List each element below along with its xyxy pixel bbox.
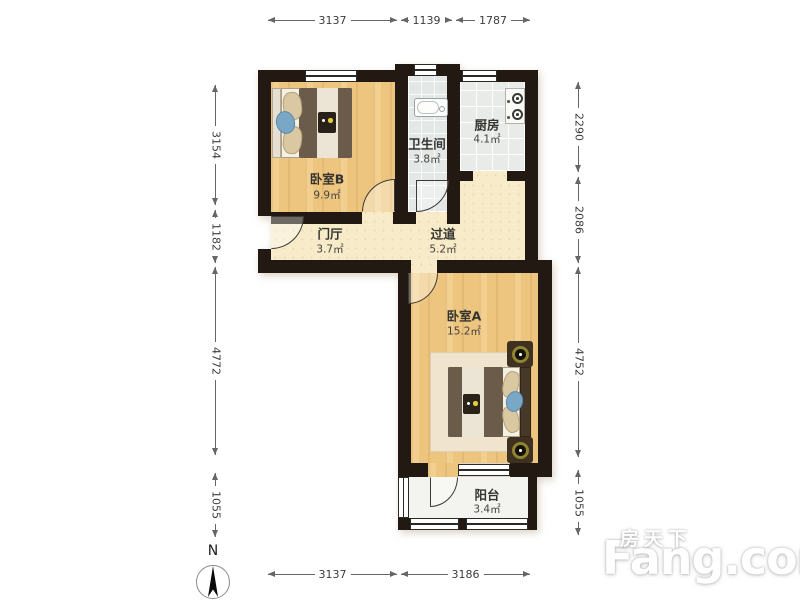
bedroom-b-area: 9.9㎡ bbox=[313, 188, 340, 203]
bedroom-a-area: 15.2㎡ bbox=[447, 324, 481, 339]
dim-right-2-value: 2086 bbox=[573, 201, 586, 239]
corridor-area: 5.2㎡ bbox=[429, 242, 456, 257]
dim-left-4: 1055 bbox=[215, 473, 216, 537]
corridor-label: 过道 bbox=[430, 224, 455, 243]
floor-plan: 卧室B 9.9㎡ 卫生间 3.8㎡ 厨房 4.1㎡ 门厅 3.7㎡ 过道 5.2… bbox=[0, 0, 800, 600]
dim-right-3: 4752 bbox=[578, 267, 579, 457]
balcony-floor bbox=[407, 477, 528, 518]
bedroom-a-label: 卧室A bbox=[447, 306, 482, 325]
dim-left-3: 4772 bbox=[215, 267, 216, 455]
tray-dot-yellow bbox=[328, 118, 333, 123]
wall-right-upper bbox=[525, 70, 538, 263]
dim-top-1-value: 3137 bbox=[315, 14, 351, 27]
bathtub-basin bbox=[417, 101, 439, 114]
tray-a-dot-white bbox=[467, 402, 470, 405]
compass-north-label: N bbox=[208, 543, 218, 559]
stove-knob-1 bbox=[507, 100, 510, 103]
wall-bathroom-kitchen bbox=[447, 64, 460, 224]
dim-top-3: 1787 bbox=[456, 20, 530, 21]
wall-mid-2 bbox=[437, 260, 552, 273]
balcony-window-bottom-2 bbox=[466, 518, 528, 530]
dim-bottom-1: 3137 bbox=[268, 574, 397, 575]
stove-burner-1 bbox=[512, 93, 523, 104]
wall-top-2 bbox=[357, 70, 395, 82]
wall-bedroomb-south-2 bbox=[393, 212, 416, 224]
bedroom-b-bed-tray bbox=[318, 112, 336, 133]
balcony-window-left bbox=[398, 477, 409, 518]
hall-label: 门厅 bbox=[317, 224, 342, 243]
bathtub-icon bbox=[414, 98, 448, 117]
dim-right-1: 2290 bbox=[578, 82, 579, 172]
bedroom-a-balcony-window bbox=[458, 464, 510, 476]
stove-knob-2 bbox=[507, 116, 510, 119]
dim-left-2: 1182 bbox=[215, 210, 216, 263]
wall-mid-1 bbox=[258, 260, 408, 273]
dim-left-3-value: 4772 bbox=[210, 342, 223, 380]
lamp-bottom-icon bbox=[512, 442, 529, 459]
stove-burner-2 bbox=[512, 109, 523, 120]
dim-right-1-value: 2290 bbox=[573, 108, 586, 146]
kitchen-area: 4.1㎡ bbox=[473, 132, 500, 147]
dim-right-3-value: 4752 bbox=[573, 343, 586, 381]
dim-top-2: 1139 bbox=[401, 20, 452, 21]
wall-left-upper bbox=[258, 70, 271, 216]
kitchen-window bbox=[462, 70, 497, 82]
kitchen-doorway-floor bbox=[473, 171, 507, 181]
dim-right-2: 2086 bbox=[578, 177, 579, 263]
bathroom-label: 卫生间 bbox=[408, 134, 446, 153]
bedroom-b-window bbox=[305, 70, 357, 82]
wall-bedroomb-bathroom bbox=[395, 64, 408, 224]
watermark-brand-cn: 房天下 bbox=[620, 524, 692, 551]
bathroom-window bbox=[414, 64, 437, 76]
bedroom-a-doorway-floor bbox=[408, 260, 437, 273]
bathroom-area: 3.8㎡ bbox=[413, 152, 440, 167]
balcony-window-bottom-1 bbox=[410, 518, 459, 530]
wall-bedrooma-right bbox=[538, 260, 552, 477]
wall-balcony-right bbox=[528, 477, 537, 530]
bathtub-tap bbox=[439, 106, 445, 112]
dim-top-3-value: 1787 bbox=[475, 14, 511, 27]
floor-plan-screenshot: 卧室B 9.9㎡ 卫生间 3.8㎡ 厨房 4.1㎡ 门厅 3.7㎡ 过道 5.2… bbox=[0, 0, 800, 600]
dim-bottom-1-value: 3137 bbox=[315, 568, 351, 581]
balcony-area: 3.4㎡ bbox=[473, 502, 500, 517]
wall-kitchen-south-2 bbox=[507, 171, 525, 181]
dim-bottom-2-value: 3186 bbox=[448, 568, 484, 581]
balcony-mullion bbox=[459, 518, 466, 530]
wall-bedrooma-south-2 bbox=[510, 463, 552, 477]
dim-right-4-value: 1055 bbox=[573, 484, 586, 522]
dim-left-4-value: 1055 bbox=[210, 486, 223, 524]
dim-left-1-value: 3154 bbox=[210, 126, 223, 164]
dim-left-1: 3154 bbox=[215, 85, 216, 205]
balcony-post-left bbox=[398, 518, 410, 530]
wall-bedrooma-south-1 bbox=[398, 463, 428, 477]
lamp-top-icon bbox=[512, 346, 529, 363]
dim-top-2-value: 1139 bbox=[409, 14, 445, 27]
hall-area: 3.7㎡ bbox=[316, 242, 343, 257]
tray-a-dot-yellow bbox=[473, 401, 478, 406]
bedroom-b-label: 卧室B bbox=[310, 169, 345, 188]
dim-left-2-value: 1182 bbox=[210, 218, 223, 256]
tray-dot-white bbox=[322, 119, 325, 122]
dim-right-4: 1055 bbox=[578, 470, 579, 535]
dim-bottom-2: 3186 bbox=[401, 574, 530, 575]
wall-bathroom-south bbox=[449, 212, 460, 224]
wall-kitchen-south-1 bbox=[447, 171, 473, 181]
balcony-doorway-floor bbox=[428, 463, 458, 477]
dim-top-1: 3137 bbox=[268, 20, 397, 21]
